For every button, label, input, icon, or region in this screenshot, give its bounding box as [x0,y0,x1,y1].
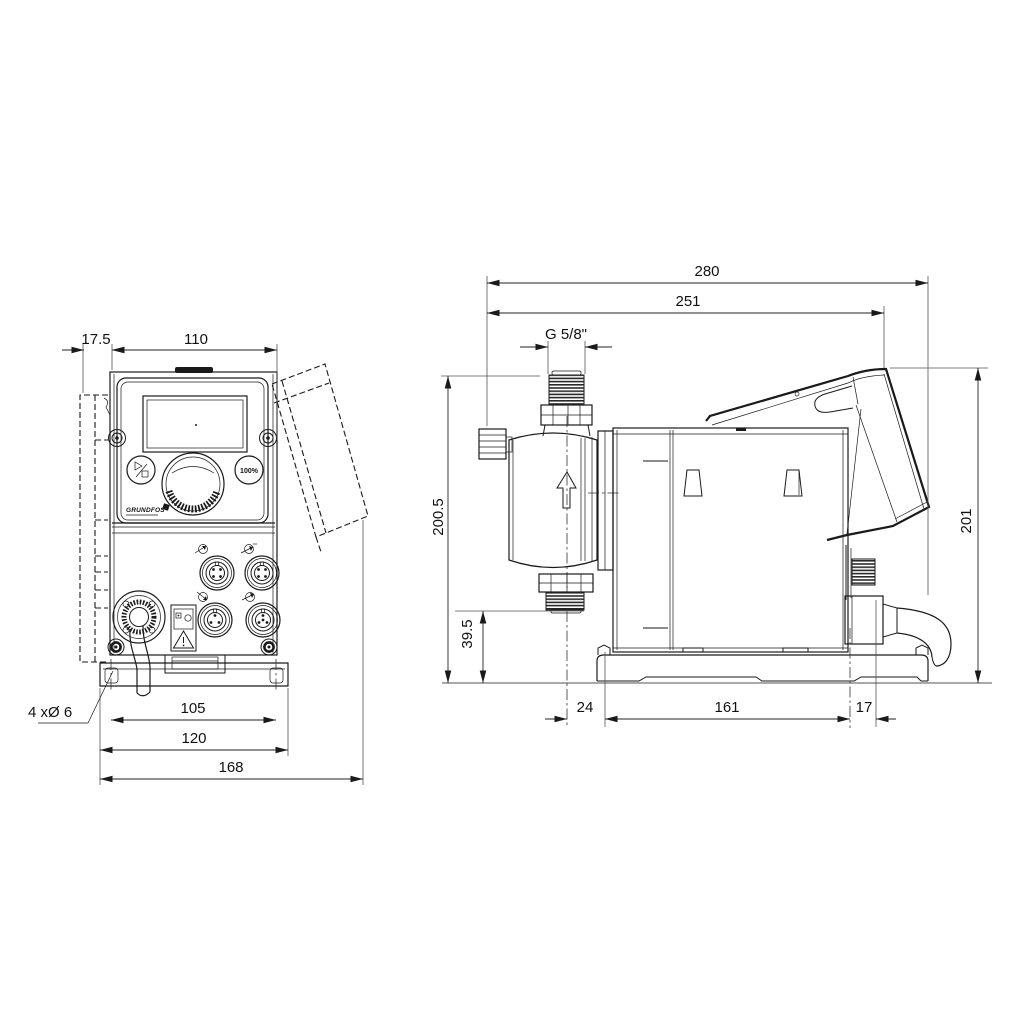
dim-label-280: 280 [694,263,719,280]
signal-icon [241,544,257,554]
dim-label-105: 105 [180,700,205,717]
dimension-thread-size: G 5/8" [520,326,612,374]
m12-connector [245,556,279,590]
coupling-nut-bottom [539,574,593,592]
display [143,396,247,452]
dim-label-g58: G 5/8" [545,326,587,343]
dim-label-39-5: 39.5 [459,619,476,648]
base-plate-front [100,659,288,692]
corner-screw [108,639,124,655]
base-plate-side [597,645,928,681]
front-cable [130,626,150,696]
back-plate [80,395,110,662]
technical-drawing-page: 100% GRUNDFOS [0,0,1024,1024]
dim-label-17: 17 [856,699,873,716]
coupling-nut-top [541,405,592,425]
dimension-housing-width: 110 [112,331,277,440]
open-lid-front-dashed [272,364,368,552]
clip [784,470,802,496]
top-tab [175,367,213,373]
dimension-161: 161 [605,628,850,728]
dim-label-110: 110 [184,331,208,348]
logo-text: GRUNDFOS [126,507,165,514]
grundfos-logo: GRUNDFOS [126,503,170,515]
max-capacity-button: 100% [235,456,263,484]
suction-thread [549,375,584,405]
m12-connector [198,603,232,637]
pump-body-side [613,428,848,652]
dimension-height-39-5: 39.5 [455,611,584,683]
control-panel: 100% GRUNDFOS [109,378,277,533]
warning-triangle-icon [174,631,194,648]
signal-icon [195,545,208,554]
dim-label-200-5: 200.5 [430,498,447,536]
deaeration-knob [479,429,512,459]
dim-label-161: 161 [714,699,739,716]
dosing-pump-dimensional-drawing: 100% GRUNDFOS [0,0,1024,1024]
dim-label-17-5: 17.5 [81,331,110,348]
dim-label-201: 201 [958,508,975,533]
power-cable [897,608,951,666]
open-lid-side [706,369,929,540]
dimension-height-201: 201 [890,368,988,683]
signal-icon [197,592,208,602]
corner-screw [261,639,277,655]
m12-connector [246,603,280,637]
pump-head [479,371,620,728]
dim-label-120: 120 [181,730,206,747]
start-stop-button [127,456,155,484]
cable-gland [845,545,951,666]
rotary-knob [162,453,224,515]
flow-up-arrow-icon [557,472,576,508]
mounting-latch [165,655,225,673]
discharge-thread [546,592,584,610]
play-stop-icon [135,462,148,477]
drive-flange [113,591,165,643]
dimension-height-200-5: 200.5 [430,376,540,683]
warning-label [171,605,196,651]
clip [684,470,702,496]
terminal-section [108,544,280,696]
front-view: 100% GRUNDFOS [28,331,368,785]
dimension-24: 24 [545,652,605,727]
max-button-label: 100% [240,468,259,475]
side-view: 280 251 G 5/8" 200.5 39.5 201 [430,263,992,728]
holes-note-label: 4 xØ 6 [28,704,72,721]
m12-connector [200,556,234,590]
dim-label-168: 168 [218,759,243,776]
dimension-overall-width: 168 [100,520,363,785]
signal-icon [242,593,255,602]
dim-label-251: 251 [675,293,700,310]
dimension-hole-spacing: 105 [111,700,276,720]
dim-label-24: 24 [577,699,594,716]
dimension-17: 17 [856,600,896,727]
